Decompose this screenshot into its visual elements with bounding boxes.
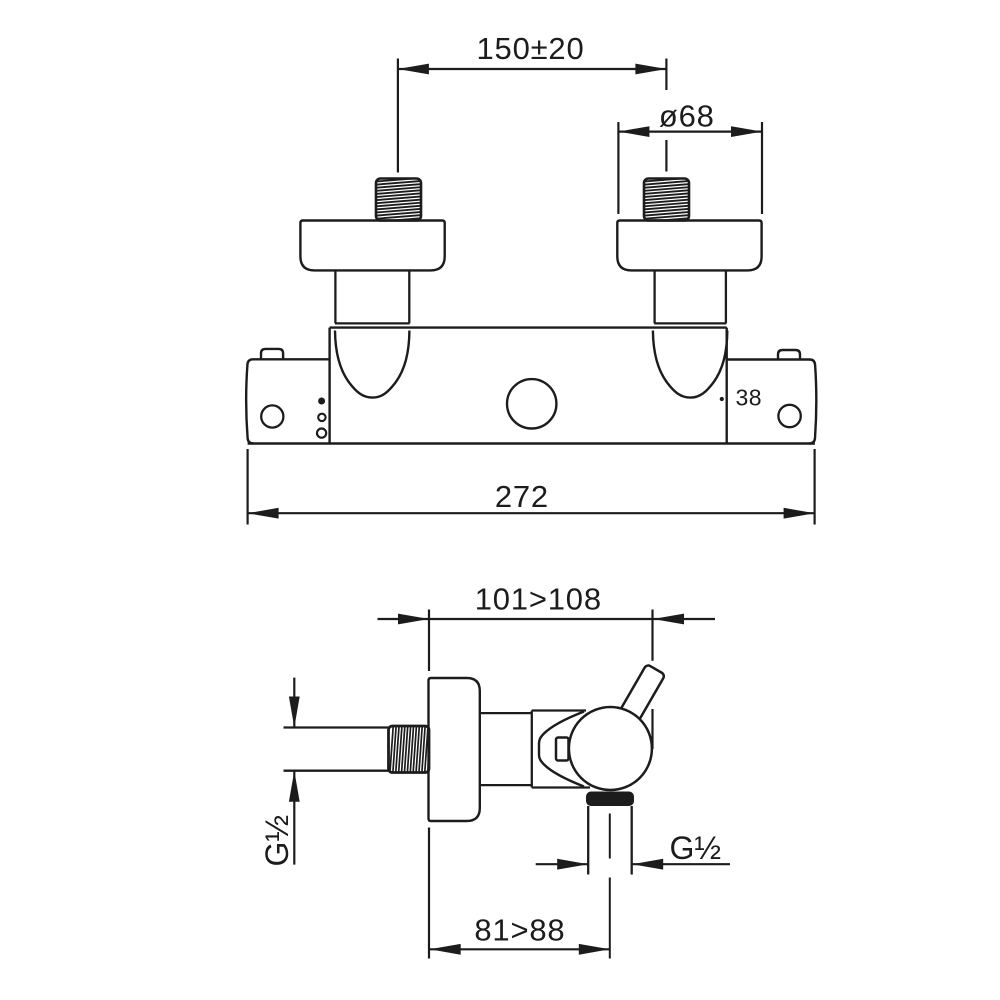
svg-text:150±20: 150±20 — [476, 31, 584, 66]
svg-text:ø68: ø68 — [659, 98, 715, 133]
svg-text:38: 38 — [736, 384, 763, 410]
svg-text:101>108: 101>108 — [475, 581, 602, 616]
svg-text:81>88: 81>88 — [474, 913, 565, 948]
svg-text:G½: G½ — [670, 830, 722, 866]
svg-text:G½: G½ — [259, 815, 295, 867]
svg-text:272: 272 — [495, 479, 549, 514]
